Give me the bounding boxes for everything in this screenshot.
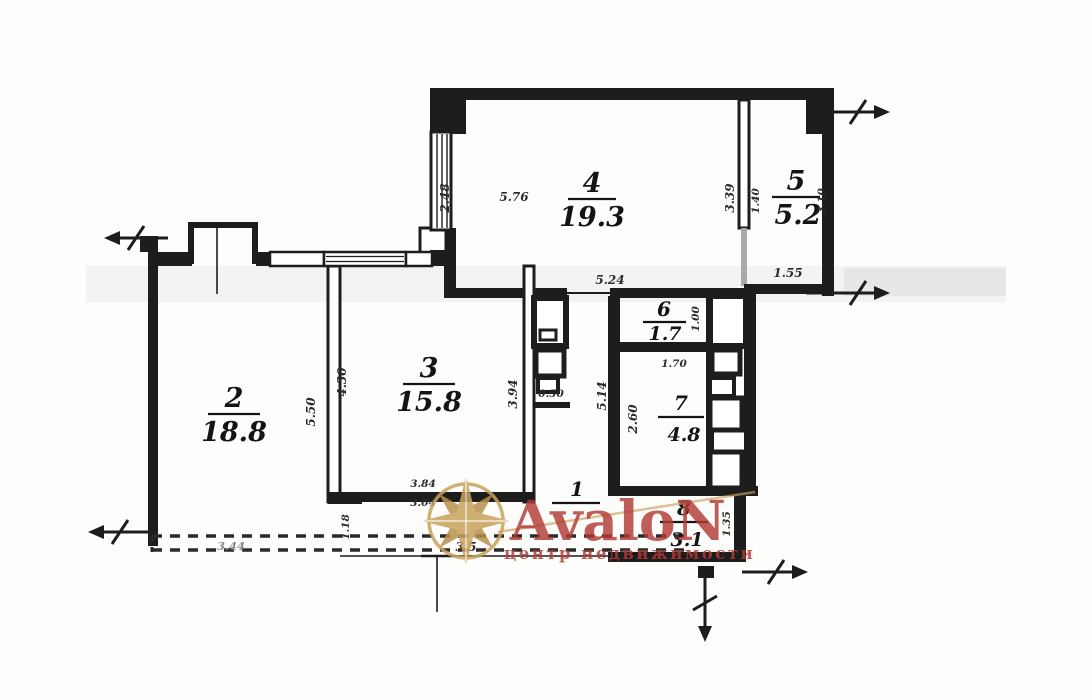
dim-room3-right: 3.94	[506, 379, 520, 408]
window-sill	[406, 252, 432, 266]
dim-room3-height: 4.30	[335, 367, 349, 397]
room-5-label: 5 5.2	[772, 166, 821, 231]
room-7-label: 7 4.8	[658, 391, 704, 446]
room-6-number: 6	[657, 297, 671, 321]
dim-shaft-width: 0.50	[538, 388, 564, 400]
floor-plan-scan: 4 19.3 5 5.2 2 18.8 3 15.8 6 1.7 7 4.8	[0, 0, 1092, 700]
room-7-area: 4.8	[667, 424, 700, 446]
dim-room2-height: 5.50	[304, 397, 318, 427]
dim-room4-bottom: 5.24	[595, 273, 624, 287]
room-4-area: 19.3	[559, 202, 625, 233]
room-3-label: 3 15.8	[396, 353, 462, 418]
room-2-area: 18.8	[201, 417, 267, 448]
dim-room7-height: 2.60	[626, 404, 640, 435]
dim-room3-bottom: 3.84	[410, 478, 436, 490]
arrow-entrance-right	[742, 560, 808, 584]
room-5-number: 5	[787, 166, 806, 197]
floor-plan-canvas: 4 19.3 5 5.2 2 18.8 3 15.8 6 1.7 7 4.8	[0, 0, 1092, 700]
dim-room5-right: 3.10	[816, 188, 828, 214]
dim-room4-right: 3.39	[723, 183, 737, 213]
room-6-area: 1.7	[648, 323, 681, 345]
room-2-label: 2 18.8	[201, 383, 267, 448]
arrow-top-left	[104, 226, 168, 250]
duct-shafts	[534, 296, 746, 488]
room-2-number: 2	[224, 383, 244, 414]
dim-room5-bottom: 1.55	[773, 266, 802, 280]
watermark-tagline: центр недвижимости	[504, 544, 755, 563]
room-5-area: 5.2	[775, 200, 822, 231]
room-4-number: 4	[583, 168, 602, 199]
dim-room6-width: 1.70	[661, 358, 687, 370]
window-room4-left	[431, 132, 451, 230]
room-7-number: 7	[674, 391, 688, 415]
dim-wall-stub: 1.18	[340, 514, 352, 540]
dim-balcony-width: 3.44	[217, 539, 245, 553]
dim-room4-width: 5.76	[499, 190, 529, 204]
section-arrows	[88, 100, 890, 642]
arrow-bottom-left	[88, 520, 150, 544]
room-4-label: 4 19.3	[559, 168, 625, 233]
window-room2-top	[324, 252, 406, 266]
dim-hall-height: 5.14	[595, 381, 609, 410]
room-6-label: 6 1.7	[643, 297, 686, 345]
dim-room4-left: 2.48	[438, 183, 452, 214]
dim-room6-height: 1.00	[690, 306, 702, 332]
dim-room5-left: 1.40	[750, 188, 762, 214]
window-sill	[270, 252, 324, 266]
room-3-number: 3	[420, 353, 439, 384]
room-3-area: 15.8	[396, 387, 462, 418]
